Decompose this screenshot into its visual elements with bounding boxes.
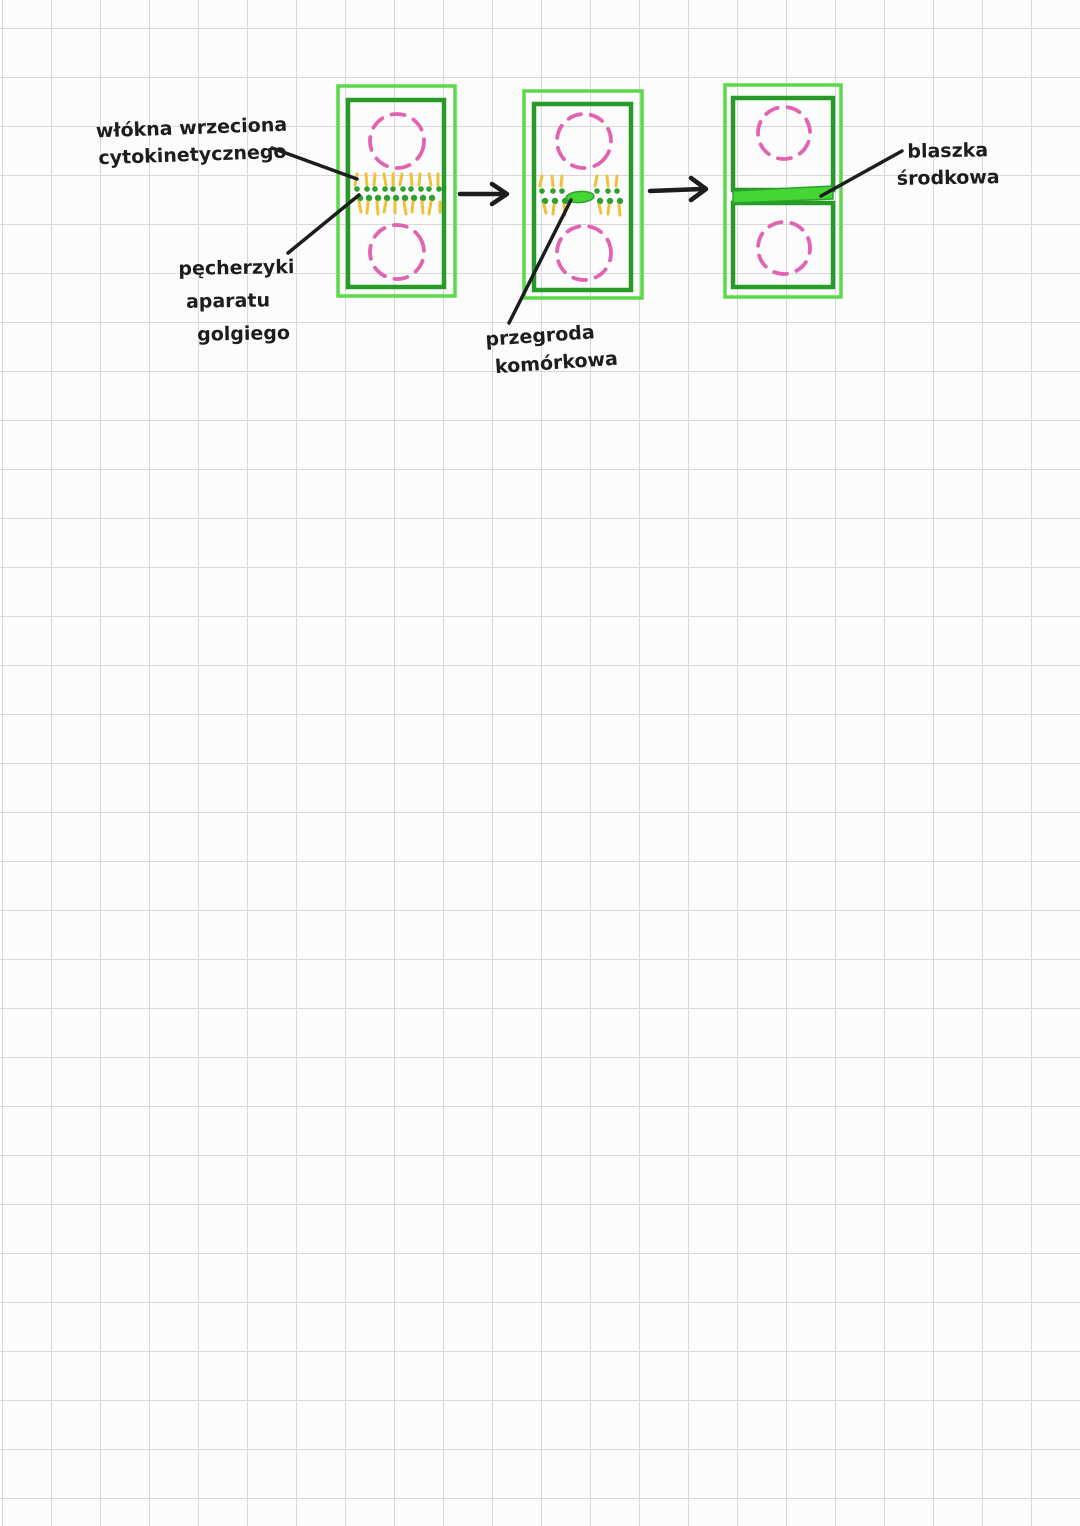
label-spindle-fibers: włókna wrzeciona cytokinetycznego [93,112,291,173]
label-cell-plate: przegroda komórkowa [476,318,606,383]
label-line: blaszka [894,137,1002,166]
nucleus-bottom-icon [360,215,434,289]
label-line: aparatu [160,284,297,319]
cell-stage-3 [725,85,841,297]
label-line: pęcherzyki [177,251,296,286]
label-middle-lamella: blaszka środkowa [894,137,1003,193]
daughter-cell-top [733,98,833,190]
nucleus-bottom-icon [552,221,616,285]
notebook-page: włókna wrzeciona cytokinetycznego pęcher… [0,0,1080,1526]
pointer-line-cell-plate [509,200,571,323]
nucleus-bottom-icon [751,215,817,281]
nucleus-top-icon [546,103,622,179]
label-line: golgiego [190,317,297,352]
label-golgi-vesicles: pęcherzyki aparatu golgiego [177,251,297,352]
arrow-right-icon [650,178,706,200]
cell-stage-2 [524,91,642,298]
label-line: środkowa [894,164,1002,193]
nucleus-top-icon [750,99,819,168]
nucleus-top-icon [364,108,429,173]
spindle-fibers-vesicles-stage-1 [354,174,442,214]
plant-cytokinesis-diagram [0,0,1080,1526]
cell-membrane-inner [348,100,444,287]
cell-stage-1 [338,86,455,296]
arrow-right-icon [460,184,507,204]
